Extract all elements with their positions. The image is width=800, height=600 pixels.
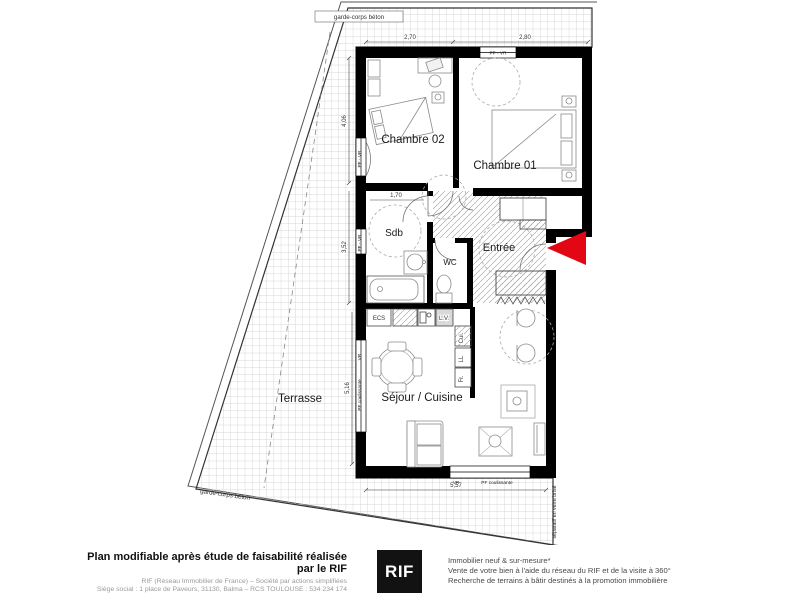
dim-left-middle: 3,52: [342, 241, 348, 253]
dim-left-lower: 5,16: [345, 382, 351, 394]
desk-chair: [429, 75, 441, 87]
room-label-sejour-cuisine: Séjour / Cuisine: [381, 392, 462, 404]
armchair: [517, 309, 535, 327]
dim-top-right: 2,80: [519, 35, 531, 41]
counter: [393, 309, 417, 326]
footer-service-2: Vente de votre bien à l'aide du réseau d…: [448, 566, 671, 576]
footer-right-block: Immobilier neuf & sur-mesure* Vente de v…: [448, 556, 671, 585]
label-lv: L.V.: [439, 316, 449, 322]
label-cui: Cui.: [459, 332, 465, 343]
room-label-sdb: Sdb: [385, 228, 403, 239]
window-label-sejour-vr: VR: [357, 353, 363, 360]
rif-logo-text: RIF: [385, 562, 414, 582]
room-label-chambre01: Chambre 01: [473, 160, 536, 172]
room-label-chambre02: Chambre 02: [381, 134, 444, 146]
room-label-terrasse: Terrasse: [278, 393, 322, 405]
wardrobe: [496, 271, 546, 295]
window-label-sejour-pf: PF coulissante: [357, 379, 363, 411]
dim-sdb-width: 1,70: [390, 193, 402, 199]
room-label-entree: Entrée: [483, 242, 515, 254]
room-label-wc: WC: [443, 258, 457, 267]
footer-title: Plan modifiable après étude de faisabili…: [72, 551, 347, 575]
garde-corps-top-label: garde-corps béton: [334, 14, 385, 21]
dim-top-left: 2,70: [404, 35, 416, 41]
footer-service-3: Recherche de terrains à bâtir destinés à…: [448, 576, 671, 586]
window-label-sdb: PF - VR: [357, 234, 363, 252]
dim-left-upper: 4,06: [342, 115, 348, 127]
wc-toilet: [436, 275, 452, 303]
sink: [407, 254, 423, 270]
tv-unit: [534, 423, 545, 455]
footer-company: RIF (Réseau Immobilier de France) – Soci…: [72, 578, 347, 586]
window-label-ch02: PF - VR: [357, 150, 363, 168]
footer-left-block: Plan modifiable après étude de faisabili…: [72, 551, 347, 593]
label-ll: LL: [459, 355, 465, 362]
floor-plan-svg: 2,70 2,80 4,06 3,52 5,16 1,70 5,57 Chamb…: [0, 0, 800, 545]
separatif-label: séparatif en verre brisé: [552, 485, 558, 538]
armchair: [517, 344, 535, 362]
label-fr: Fr.: [459, 375, 465, 382]
window-label-bottom-pf: PF coulissante: [481, 480, 513, 486]
footer-address: Siège social : 1 place de Paveurs, 31130…: [72, 586, 347, 594]
label-ecs: ECS: [373, 316, 385, 322]
window-label-top: PF - VR: [489, 51, 507, 57]
window-label-bottom-vr: VR: [453, 480, 460, 486]
floor-plan-page: 2,70 2,80 4,06 3,52 5,16 1,70 5,57 Chamb…: [0, 0, 800, 600]
rif-logo: RIF: [377, 550, 422, 593]
footer-service-1: Immobilier neuf & sur-mesure*: [448, 556, 671, 566]
